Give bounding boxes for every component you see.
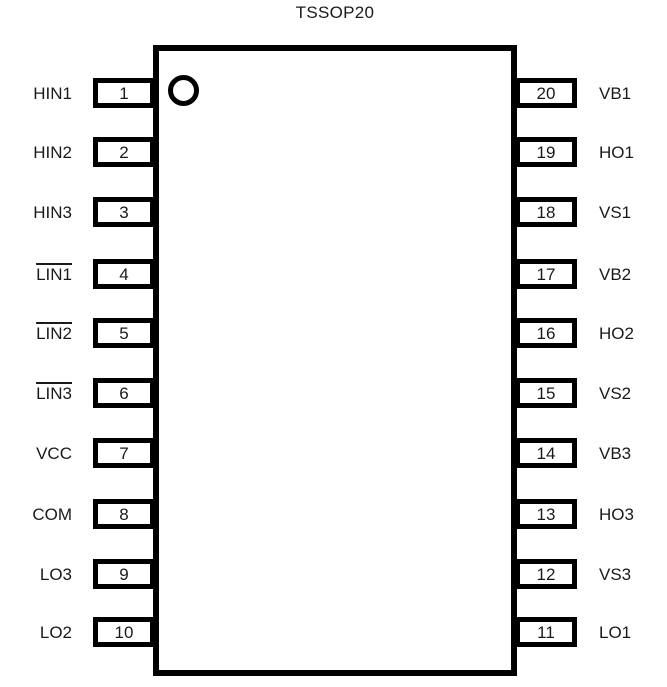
pin-row-4: LIN1 4 (0, 259, 155, 289)
pin-row-8: COM 8 (0, 499, 155, 529)
pin-box: 17 (515, 259, 577, 289)
pin-number: 19 (537, 144, 556, 161)
pin-row-7: VCC 7 (0, 438, 155, 468)
pin-number: 3 (119, 204, 128, 221)
pin-name-label: HO3 (599, 506, 634, 523)
pin-box: 18 (515, 197, 577, 227)
pin-number: 20 (537, 85, 556, 102)
pin-name-label: COM (32, 506, 72, 523)
pin-name-label: VB3 (599, 445, 631, 462)
pin-name-label: HIN3 (33, 204, 72, 221)
pin-box: 5 (93, 318, 155, 348)
pin-name-label: LO1 (599, 624, 631, 641)
pin-row-17: 17 VB2 (515, 259, 667, 289)
pin-box: 3 (93, 197, 155, 227)
pin-row-18: 18 VS1 (515, 197, 667, 227)
pin-row-12: 12 VS3 (515, 559, 667, 589)
pin-box: 6 (93, 378, 155, 408)
pin-box: 15 (515, 378, 577, 408)
pin-box: 14 (515, 438, 577, 468)
pin-number: 17 (537, 266, 556, 283)
pin-number: 14 (537, 445, 556, 462)
pinout-diagram: TSSOP20 HIN1 1 HIN2 2 HIN3 3 LIN1 4 LIN2… (0, 0, 667, 687)
pin-number: 10 (115, 624, 134, 641)
pin-row-19: 19 HO1 (515, 137, 667, 167)
pin-box: 8 (93, 499, 155, 529)
pin-number: 2 (119, 144, 128, 161)
pin-number: 15 (537, 385, 556, 402)
pin-number: 1 (119, 85, 128, 102)
ic-package-body (153, 45, 517, 676)
pin-name-label: HO2 (599, 325, 634, 342)
pin-number: 18 (537, 204, 556, 221)
pin-name-label: VS3 (599, 566, 631, 583)
pin-number: 16 (537, 325, 556, 342)
pin-row-6: LIN3 6 (0, 378, 155, 408)
pin-box: 20 (515, 78, 577, 108)
pin-box: 13 (515, 499, 577, 529)
pin-box: 12 (515, 559, 577, 589)
pin-name-label: HIN1 (33, 85, 72, 102)
pin-number: 11 (537, 624, 555, 641)
pin-box: 10 (93, 617, 155, 647)
pin-row-14: 14 VB3 (515, 438, 667, 468)
pin-box: 19 (515, 137, 577, 167)
pin-row-15: 15 VS2 (515, 378, 667, 408)
pin-number: 8 (119, 506, 128, 523)
pin-name-label: LIN3 (36, 385, 72, 402)
pin-name-label: VB1 (599, 85, 631, 102)
pin-box: 11 (515, 617, 577, 647)
pin-number: 7 (119, 445, 128, 462)
pin-name-label: LO3 (40, 566, 72, 583)
pin-name-label: LIN2 (36, 325, 72, 342)
pin-number: 12 (537, 566, 556, 583)
pin-name-label: VS2 (599, 385, 631, 402)
pin-name-label: VB2 (599, 266, 631, 283)
pin-name-label: LO2 (40, 624, 72, 641)
pin-name-label: VS1 (599, 204, 631, 221)
pin-name-label: HO1 (599, 144, 634, 161)
pin-name-label: VCC (36, 445, 72, 462)
pin-box: 2 (93, 137, 155, 167)
pin-row-1: HIN1 1 (0, 78, 155, 108)
pin-name-label: LIN1 (36, 266, 72, 283)
pin-box: 7 (93, 438, 155, 468)
pin-box: 4 (93, 259, 155, 289)
pin-box: 9 (93, 559, 155, 589)
pin-row-10: LO2 10 (0, 617, 155, 647)
pin-number: 6 (119, 385, 128, 402)
pin-box: 16 (515, 318, 577, 348)
pin-row-5: LIN2 5 (0, 318, 155, 348)
pin-row-9: LO3 9 (0, 559, 155, 589)
pin-number: 5 (119, 325, 128, 342)
pin-row-3: HIN3 3 (0, 197, 155, 227)
pin-number: 4 (119, 266, 128, 283)
pin-number: 9 (119, 566, 128, 583)
pin-box: 1 (93, 78, 155, 108)
pin-row-2: HIN2 2 (0, 137, 155, 167)
pin1-indicator-icon (168, 75, 199, 106)
pin-row-20: 20 VB1 (515, 78, 667, 108)
pin-row-13: 13 HO3 (515, 499, 667, 529)
pin-name-label: HIN2 (33, 144, 72, 161)
pin-number: 13 (537, 506, 556, 523)
pin-row-16: 16 HO2 (515, 318, 667, 348)
package-title: TSSOP20 (153, 3, 517, 23)
pin-row-11: 11 LO1 (515, 617, 667, 647)
